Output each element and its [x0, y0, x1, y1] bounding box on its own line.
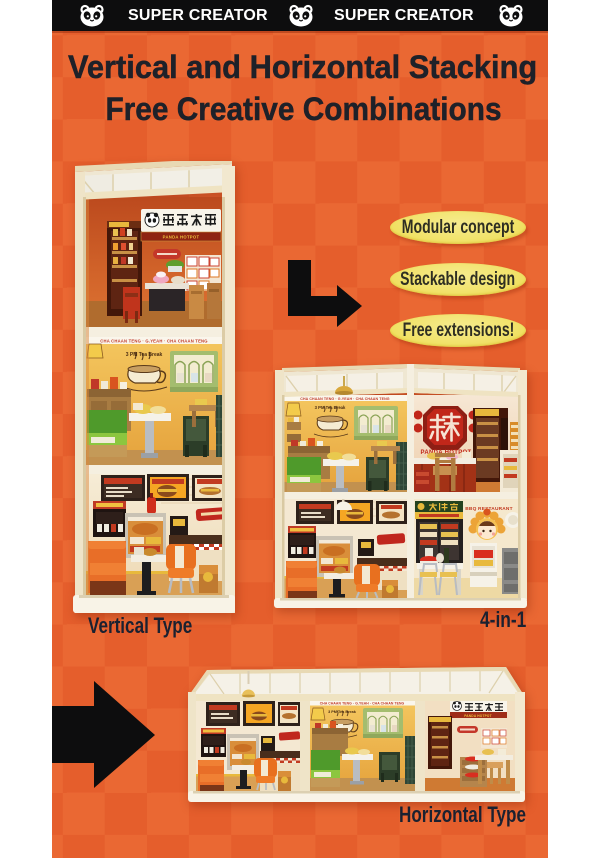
svg-text:CHA CHAAN TENG · G.YEAH · CHA: CHA CHAAN TENG · G.YEAH · CHA CHAAN TENG — [300, 397, 389, 401]
svg-text:PANDA HOTPOT: PANDA HOTPOT — [464, 714, 492, 718]
svg-text:3 PM Tea Break: 3 PM Tea Break — [126, 352, 163, 358]
svg-text:3 PM Tea Break: 3 PM Tea Break — [315, 405, 346, 410]
svg-text:CHA CHAAN TENG · G.YEAH · CHA: CHA CHAAN TENG · G.YEAH · CHA CHAAN TENG — [320, 702, 405, 706]
svg-text:CHA CHAAN TENG · G.YEAH · CHA: CHA CHAAN TENG · G.YEAH · CHA CHAAN TENG — [100, 339, 208, 344]
svg-text:3 PM Tea Break: 3 PM Tea Break — [328, 710, 357, 714]
svg-text:PANDA HOTPOT: PANDA HOTPOT — [163, 234, 200, 239]
